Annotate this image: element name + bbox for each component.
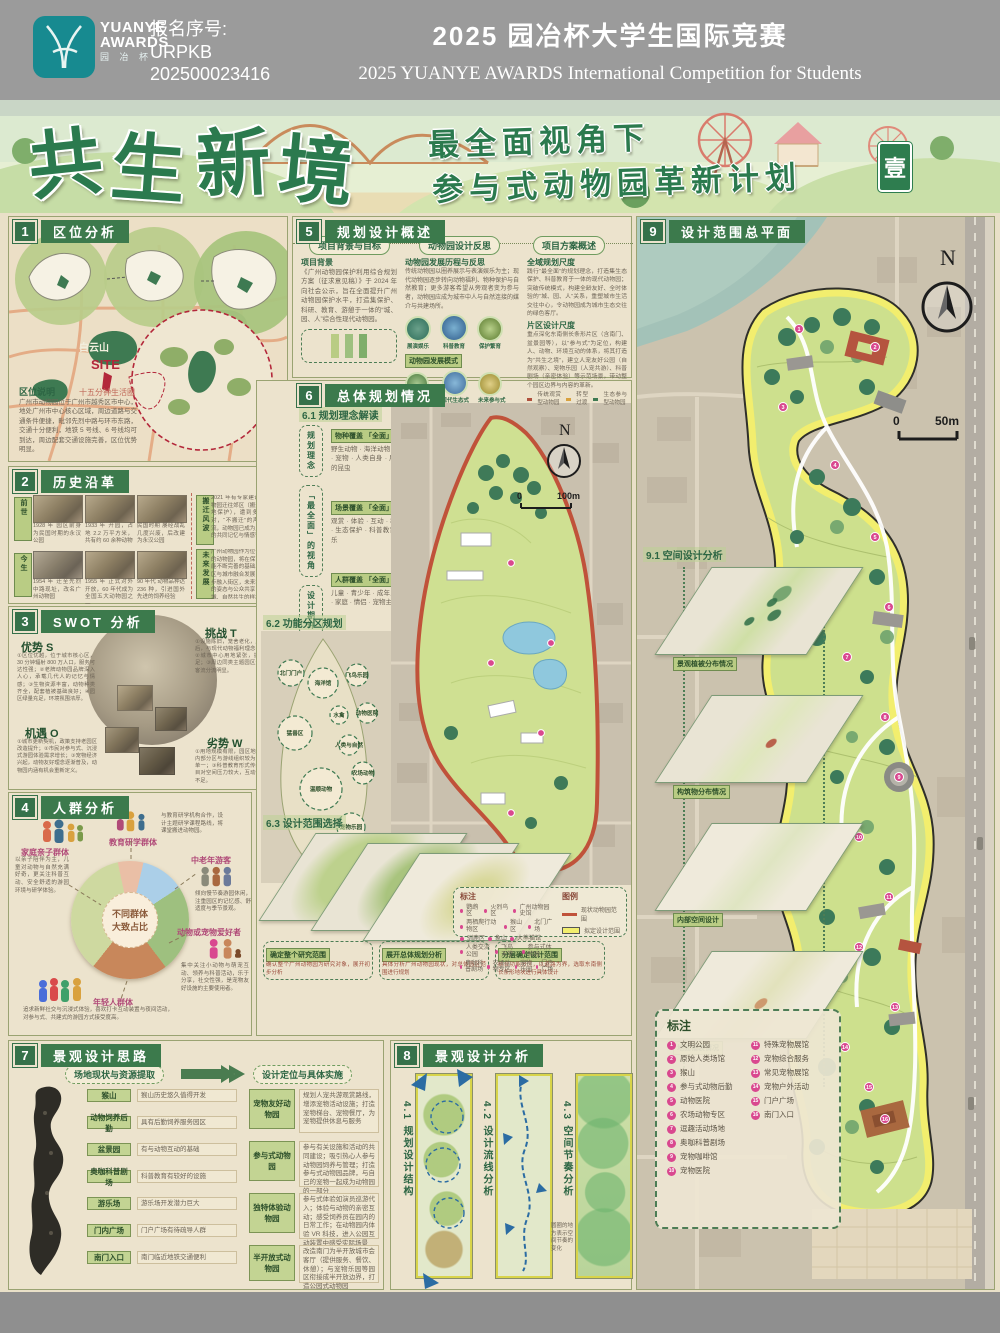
svg-text:11: 11 (886, 895, 892, 901)
zoo-reflection-block: 动物园发展历程与反思 传统动物园以圈养展示与表演娱乐为主；现代动物园逐步转向动物… (405, 257, 519, 404)
location-note: 区位说明 广州市动物园位于广州市越秀区市中心，地处广州市中心核心区域，周边道路与… (19, 385, 137, 455)
panel-master-planning: 6 总体规划情况 6.1 规划理念解读 规划理念 「最全面」的视角 设计期许 物… (256, 380, 632, 1036)
structure-arrows (405, 1067, 485, 1291)
site-item-label: 奥咖科普剧场 (87, 1170, 131, 1183)
label-circulation-analysis: 4.2 设计流线分析 (479, 1101, 494, 1251)
svg-text:3: 3 (781, 405, 784, 411)
subsection-63: 6.3 设计范围选择 (263, 815, 346, 830)
section-number: 6 (297, 384, 321, 407)
yuanye-logo-icon (33, 16, 95, 78)
section-number: 7 (13, 1044, 37, 1067)
svg-text:白云山: 白云山 (79, 341, 109, 354)
svg-text:7: 7 (845, 655, 848, 661)
section-number: 8 (395, 1044, 419, 1067)
scope-step-1: 确定整个研究范围 确认整个广州动物园为研究对象，展开初步分析 (263, 941, 373, 980)
svg-text:0: 0 (893, 414, 900, 428)
site-item-desc: 游乐场开发潜力巨大 (137, 1197, 237, 1210)
history-photo (85, 551, 135, 579)
strategy-label: 参与式动物园 (249, 1141, 295, 1181)
seal-stamp: 壹 (878, 142, 912, 192)
svg-text:北门门户: 北门门户 (280, 669, 302, 677)
svg-text:水禽: 水禽 (332, 711, 345, 719)
site-silhouette-map (21, 1083, 79, 1279)
svg-text:14: 14 (842, 1045, 849, 1051)
panel-location-analysis: 1 区位分析 白云山 SITE 十五分钟生活圈 区位说明 (8, 216, 288, 462)
svg-text:13: 13 (892, 1005, 898, 1011)
svg-text:人类与自然: 人类与自然 (334, 741, 363, 749)
site-item-desc: 猴山历史悠久值得开发 (137, 1089, 237, 1102)
subsection-62: 6.2 功能分区规划 (263, 615, 346, 630)
column-header-design-implementation: 设计定位与具体实施 (253, 1065, 352, 1084)
subsection-91: 9.1 空间设计分析 (643, 547, 726, 562)
history-photo (85, 495, 135, 523)
swot-collage (87, 615, 217, 745)
section-title: 景观设计分析 (423, 1044, 543, 1067)
timeline-caption: 90 年代 动物品种达 236 种，引进国外先进的饲养经验 (137, 579, 185, 602)
site-item-label: 动物饲养后勤 (87, 1116, 131, 1129)
strategy-desc: 参与式体验如演员巡游代入；体验与动物的亲密互动；感受饲养员在园内的日常工作；在动… (299, 1193, 379, 1239)
svg-text:8: 8 (883, 715, 886, 721)
concept-rail-2: 「最全面」的视角 (299, 485, 323, 577)
section-number: 2 (13, 470, 37, 493)
masterplan-legend: 标注 1文明公园 2原始人类场馆 3猴山 4参与式动物后勤 5动物医院 6农场动… (655, 1009, 841, 1229)
site-item-desc: 南门临近地铁交通便利 (137, 1251, 237, 1264)
section-number: 1 (13, 220, 37, 243)
section-title: 人群分析 (41, 796, 129, 819)
project-background: 项目背景 《广州动物园保护利用综合规划方案（征求意见稿）》于 2024 年向社会… (301, 257, 397, 363)
history-photo (33, 495, 83, 523)
strategy-desc: 改造南门为半开放城市会客厅（提供服务、餐饮、休憩）；与宠物乐园等园区衔接成半开放… (299, 1245, 379, 1283)
panel-swot: 3 SWOT 分析 优势 S ①区位优越，位于城市核心区，30 分钟辐射 800… (8, 606, 288, 790)
concept-rail-1: 规划理念 (299, 425, 323, 477)
strategy-label: 半开放式动物园 (249, 1245, 295, 1281)
svg-text:2: 2 (873, 345, 876, 351)
svg-text:50m: 50m (935, 414, 959, 428)
panel-history: 2 历史沿革 前世 今生 1928 年 园区前身为民国时期的永汉公园 1933 … (8, 466, 288, 604)
strategy-desc: 规划人宠共游观赏路线，增添宠物活动设施；打造宠物梯台、宠物餐厅，为宠物提供休息与… (299, 1089, 379, 1133)
svg-text:温顺动物: 温顺动物 (310, 785, 333, 793)
layer-label: 内部空间设计 (673, 913, 723, 927)
section-title: 规划设计概述 (325, 220, 445, 243)
site-item-label: 猴山 (87, 1089, 131, 1102)
swot-photo (155, 707, 187, 731)
site-item-label: 盆景园 (87, 1143, 131, 1156)
timeline-caption: 1954 年 迁至先烈中路现址，改名广州动物园 (33, 579, 81, 602)
panel-masterplan: 1 2 3 4 5 6 7 8 9 10 11 12 13 14 15 16 N (636, 216, 995, 1290)
svg-text:1: 1 (797, 327, 800, 333)
strategy-desc: 参与有关设施和活动的共同建设；吸引热心人参与动物园饲养与管理；打造参与式动物园品… (299, 1141, 379, 1187)
layer-label: 构筑物分布情况 (673, 785, 730, 799)
divider (191, 493, 192, 599)
competition-title: 2025 园冶杯大学生国际竞赛 2025 YUANYE AWARDS Inter… (310, 16, 910, 85)
timeline-caption: 民国时期 屡经战乱几度兴废，后改建为永汉公园 (137, 523, 185, 546)
svg-text:猛兽区: 猛兽区 (286, 729, 304, 737)
svg-text:N: N (940, 245, 956, 270)
svg-text:5: 5 (873, 535, 876, 541)
scheme-overview-block: 全域规划尺度 践行“最全面”的规划理念，打造集生态保护、科普教育于一体的现代动物… (527, 257, 627, 407)
section-title: SWOT 分析 (41, 610, 155, 633)
svg-text:16: 16 (882, 1117, 888, 1123)
poster-subtitle-line1: 最全面视角下 (427, 112, 650, 165)
mid-annotation-legend: 标注 鹦鹉区火烈鸟区广州动物园史馆 两栖爬行动物区猴山区北门广场 驯鹿区象山大熊… (453, 887, 627, 937)
swot-photo (139, 747, 175, 775)
history-photo (33, 551, 83, 579)
section-number: 3 (13, 610, 37, 633)
section-title: 景观设计思路 (41, 1044, 161, 1067)
site-item-desc: 有与动物互动的基础 (137, 1143, 237, 1156)
panel-landscape-design-approach: 7 景观设计思路 场地现状与资源提取 设计定位与具体实施 猴山 猴山历史悠久值得… (8, 1040, 384, 1290)
swot-photo (117, 685, 153, 711)
svg-text:N: N (559, 422, 571, 439)
era-tag-past: 前世 (14, 497, 32, 541)
circulation-route (495, 1073, 551, 1277)
section-number: 4 (13, 796, 37, 819)
section-number: 5 (297, 220, 321, 243)
svg-text:15: 15 (866, 1085, 872, 1091)
layer-label: 景观植被分布情况 (673, 657, 737, 671)
swot-opportunities-text: ①城市更新契机，政策支持老园区改造提升；②市民对参与式、沉浸式游园体验需求增长；… (17, 739, 97, 775)
panel-planning-overview: 5 规划设计概述 项目背景与目标 动物园设计反思 项目方案概述 项目背景 《广州… (292, 216, 632, 378)
pie-connectors (9, 793, 253, 1037)
svg-text:100m: 100m (557, 491, 580, 501)
timeline-caption: 1933 年 开园，占地 2.2 万平方米，共有约 60 余种动物 (85, 523, 133, 546)
tree-icon (930, 136, 954, 160)
svg-text:动物医院: 动物医院 (356, 709, 379, 717)
svg-text:9: 9 (897, 775, 900, 781)
svg-text:飞鸟乐园: 飞鸟乐园 (346, 671, 369, 679)
poster-main-title: 共生新境 (28, 104, 364, 211)
section-title: 区位分析 (41, 220, 129, 243)
era-tag-present: 今生 (14, 553, 32, 597)
section-title: 总体规划情况 (325, 384, 445, 407)
history-photo (137, 495, 187, 523)
column-header-site-resources: 场地现状与资源提取 (65, 1065, 164, 1084)
section-title: 历史沿革 (41, 470, 129, 493)
site-item-desc: 科普教育有较好的设施 (137, 1170, 237, 1183)
site-item-label: 游乐场 (87, 1197, 131, 1210)
svg-text:农场动物: 农场动物 (351, 769, 375, 777)
svg-text:0: 0 (517, 491, 522, 501)
site-item-label: 南门入口 (87, 1251, 131, 1264)
svg-text:海洋馆: 海洋馆 (315, 679, 332, 687)
svg-text:10: 10 (856, 835, 862, 841)
strategy-label: 独特体验动物园 (249, 1193, 295, 1233)
section-title: 设计范围总平面 (669, 220, 805, 243)
header-bar: YUANYEAWARDS 园 冶 杯 报名序号:URPKB20250002341… (0, 0, 1000, 100)
history-photo (137, 551, 187, 579)
timeline-caption: 1928 年 园区前身为民国时期的永汉公园 (33, 523, 81, 546)
site-item-label: 门内广场 (87, 1224, 131, 1237)
flow-arrow-icon (181, 1065, 247, 1083)
registration-number: 报名序号:URPKB202500023416 (150, 18, 270, 86)
panel-landscape-analysis: 8 景观设计分析 4.1 规划设计结构 4.2 设计流线分析 4.3 空间节奏分… (390, 1040, 632, 1290)
strategy-label: 宠物友好动物园 (249, 1089, 295, 1129)
overall-site-plan-map: N 0 100m (391, 403, 631, 885)
rhythm-note: 圆圈的地方表示空间节奏的变化 (551, 1223, 573, 1254)
rhythm-strip-map (575, 1073, 633, 1279)
swot-strengths-text: ①区位优越，位于城市核心区，30 分钟辐射 800 万人口，服务可达性强；②老牌… (17, 653, 95, 703)
site-item-desc: 具有后勤饲养服务园区 (137, 1116, 237, 1129)
pill-scheme-overview: 项目方案概述 (533, 236, 605, 255)
banner-illustration: 共生新境 最全面视角下 参与式动物园革新计划 壹 (0, 100, 1000, 213)
panel-crowd-analysis: 4 人群分析 不同群体大致占比 家庭亲子群体 以亲子陪伴为主，儿童对动物与自然充… (8, 792, 252, 1036)
swot-photo (105, 727, 139, 753)
subsection-61: 6.1 规划理念解读 (299, 407, 382, 422)
section-number: 9 (641, 220, 665, 243)
svg-text:SITE: SITE (91, 357, 120, 372)
site-item-desc: 门户广场有待疏导人群 (137, 1224, 237, 1237)
svg-text:6: 6 (887, 605, 890, 611)
